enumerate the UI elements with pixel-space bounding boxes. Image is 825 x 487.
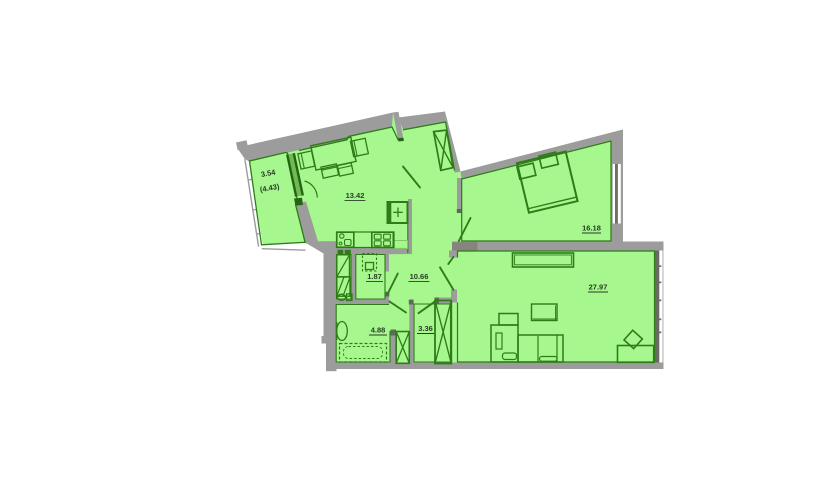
- svg-text:10.66: 10.66: [410, 272, 429, 281]
- svg-text:27.97: 27.97: [589, 283, 608, 292]
- svg-text:4.88: 4.88: [371, 326, 386, 335]
- svg-text:16.18: 16.18: [582, 224, 601, 233]
- svg-text:13.42: 13.42: [346, 191, 365, 200]
- svg-text:1.87: 1.87: [367, 272, 382, 281]
- svg-text:3.36: 3.36: [418, 324, 433, 333]
